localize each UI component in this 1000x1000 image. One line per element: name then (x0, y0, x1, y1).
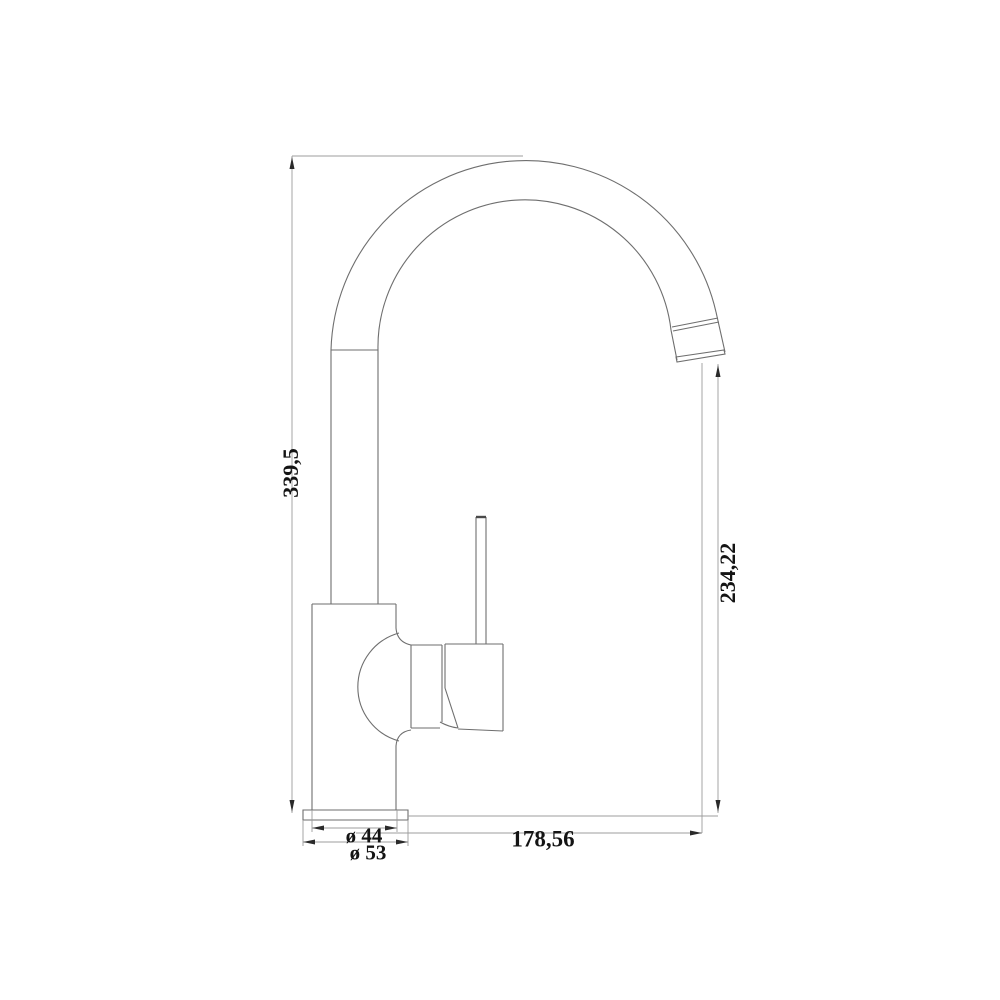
base-plate (303, 810, 408, 820)
spout-reach-dimension-label: 178,56 (511, 828, 574, 851)
handle-lever-rod (476, 517, 486, 644)
handle-housing (445, 644, 503, 731)
spout-outlet-height-dimension-label: 234,22 (717, 543, 739, 604)
overall-height-dimension-label: 339,5 (280, 448, 302, 498)
ball-joint (358, 633, 399, 741)
faucet-line-drawing (0, 0, 1000, 1000)
dimension-lines (290, 156, 721, 846)
technical-drawing-canvas: 339,5 234,22 178,56 ø 44 ø 53 (0, 0, 1000, 1000)
spout-arc (331, 161, 716, 350)
cartridge-housing (411, 645, 458, 728)
spout-riser-tube (331, 350, 378, 604)
aerator-outlet (671, 312, 725, 362)
base-diameter-dimension-label: ø 53 (350, 843, 387, 864)
